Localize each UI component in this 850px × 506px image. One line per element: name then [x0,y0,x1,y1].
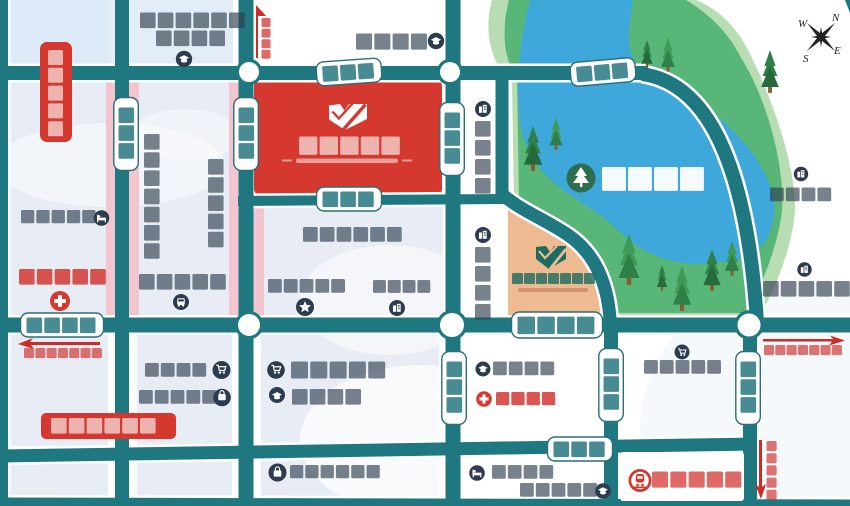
svg-text:E: E [833,45,841,57]
svg-text:W: W [798,18,808,30]
svg-text:S: S [803,53,809,65]
svg-text:N: N [831,12,840,24]
